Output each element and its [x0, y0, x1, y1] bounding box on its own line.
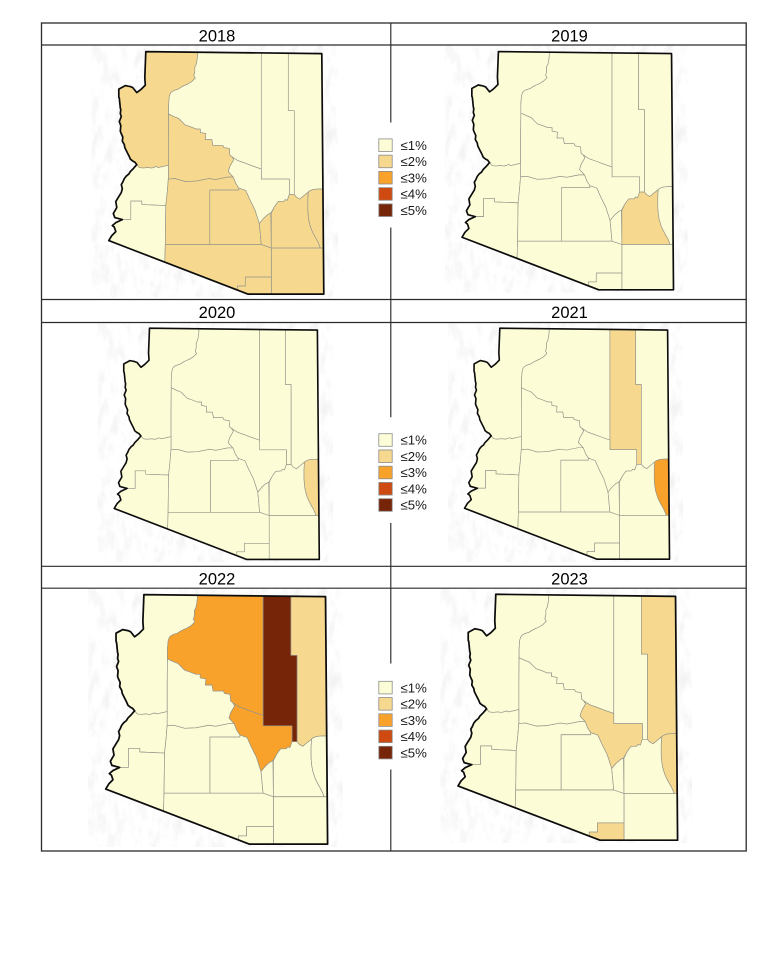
svg-text:≤2%: ≤2%: [401, 449, 428, 464]
svg-text:≤4%: ≤4%: [401, 729, 428, 744]
svg-text:2021: 2021: [551, 304, 588, 322]
svg-text:≤5%: ≤5%: [401, 745, 428, 760]
svg-text:≤1%: ≤1%: [401, 138, 428, 153]
svg-text:2023: 2023: [551, 570, 588, 588]
svg-text:≤3%: ≤3%: [401, 713, 428, 728]
svg-text:2022: 2022: [199, 570, 236, 588]
svg-text:≤5%: ≤5%: [401, 498, 428, 513]
svg-text:2020: 2020: [199, 304, 236, 322]
svg-text:≤2%: ≤2%: [401, 697, 428, 712]
svg-text:≤1%: ≤1%: [401, 680, 428, 695]
svg-text:2018: 2018: [199, 27, 236, 45]
svg-text:≤3%: ≤3%: [401, 465, 428, 480]
svg-text:≤4%: ≤4%: [401, 481, 428, 496]
svg-text:≤2%: ≤2%: [401, 154, 428, 169]
svg-text:≤4%: ≤4%: [401, 187, 428, 202]
svg-text:≤3%: ≤3%: [401, 170, 428, 185]
svg-text:≤1%: ≤1%: [401, 433, 428, 448]
svg-text:≤5%: ≤5%: [401, 203, 428, 218]
svg-text:2019: 2019: [551, 27, 588, 45]
